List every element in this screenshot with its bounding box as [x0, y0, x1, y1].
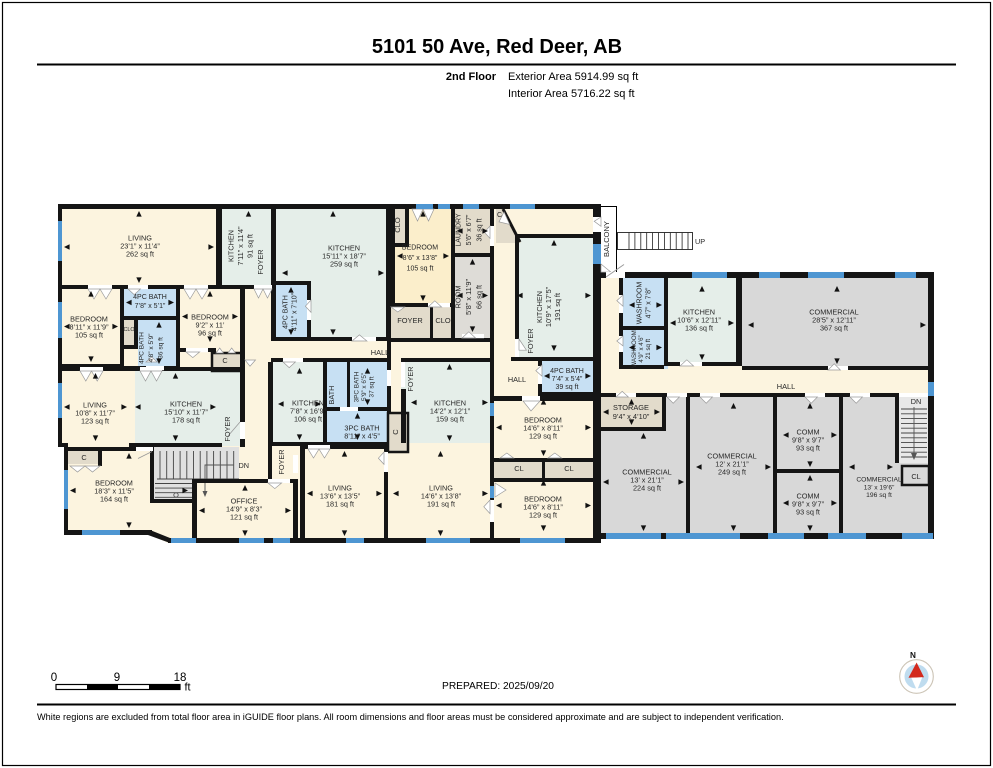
svg-text:7’8” x 5’1”: 7’8” x 5’1”	[135, 303, 166, 310]
svg-text:13’ x 19’6”: 13’ x 19’6”	[864, 484, 895, 491]
svg-text:129 sq ft: 129 sq ft	[529, 511, 557, 520]
svg-text:FOYER: FOYER	[406, 366, 415, 391]
svg-text:2nd Floor: 2nd Floor	[446, 71, 497, 83]
svg-text:CL: CL	[911, 472, 920, 481]
svg-text:37 sq ft: 37 sq ft	[368, 376, 375, 397]
svg-text:21 sq ft: 21 sq ft	[645, 339, 652, 360]
svg-text:Exterior Area 5914.99 sq ft: Exterior Area 5914.99 sq ft	[508, 71, 638, 83]
svg-text:93 sq ft: 93 sq ft	[796, 508, 820, 517]
svg-text:4’8” x 5’9”: 4’8” x 5’9”	[148, 334, 155, 363]
svg-text:129 sq ft: 129 sq ft	[529, 432, 557, 441]
svg-text:4’9” x 4’6”: 4’9” x 4’6”	[638, 335, 645, 362]
svg-text:FOYER: FOYER	[277, 449, 286, 474]
svg-text:KITCHEN: KITCHEN	[535, 291, 544, 323]
svg-text:66 sq ft: 66 sq ft	[475, 285, 484, 309]
svg-text:DN: DN	[911, 397, 922, 406]
svg-text:BEDROOM: BEDROOM	[402, 244, 438, 251]
svg-text:COMMERCIAL: COMMERCIAL	[856, 477, 902, 484]
svg-text:Interior Area 5716.22 sq ft: Interior Area 5716.22 sq ft	[508, 88, 635, 100]
svg-text:8’11” x 4’5”: 8’11” x 4’5”	[344, 432, 380, 441]
svg-text:HALL: HALL	[371, 348, 390, 357]
svg-text:5101 50 Ave, Red Deer, AB: 5101 50 Ave, Red Deer, AB	[372, 36, 622, 58]
svg-text:191 sq ft: 191 sq ft	[553, 293, 562, 321]
svg-text:93 sq ft: 93 sq ft	[796, 444, 820, 453]
svg-text:5’9” x 6’5”: 5’9” x 6’5”	[361, 373, 368, 401]
svg-text:224 sq ft: 224 sq ft	[633, 484, 661, 493]
svg-text:CL: CL	[514, 464, 523, 473]
svg-text:FOYER: FOYER	[397, 316, 422, 325]
svg-text:0: 0	[51, 672, 57, 684]
svg-text:123 sq ft: 123 sq ft	[81, 417, 109, 426]
svg-text:3PC BATH: 3PC BATH	[354, 371, 361, 402]
svg-text:BATH: BATH	[327, 386, 336, 405]
svg-text:191 sq ft: 191 sq ft	[427, 500, 455, 509]
svg-text:164 sq ft: 164 sq ft	[100, 495, 128, 504]
svg-text:367 sq ft: 367 sq ft	[820, 324, 848, 333]
svg-text:36 sq ft: 36 sq ft	[158, 337, 165, 359]
svg-text:ft: ft	[185, 682, 191, 694]
svg-text:4PC BATH: 4PC BATH	[139, 332, 146, 364]
svg-text:9: 9	[114, 672, 120, 684]
svg-text:4’11” x 7’10”: 4’11” x 7’10”	[292, 292, 299, 331]
svg-text:196 sq ft: 196 sq ft	[866, 492, 892, 499]
svg-text:C: C	[81, 453, 86, 462]
svg-text:121 sq ft: 121 sq ft	[230, 513, 258, 522]
svg-text:CLO: CLO	[123, 327, 134, 333]
svg-text:FOYER: FOYER	[526, 328, 535, 353]
svg-text:C: C	[391, 429, 400, 435]
svg-text:FOYER: FOYER	[256, 249, 265, 274]
svg-text:39 sq ft: 39 sq ft	[556, 384, 579, 391]
svg-text:CLO: CLO	[393, 217, 402, 233]
svg-text:FOYER: FOYER	[223, 416, 232, 441]
svg-text:181 sq ft: 181 sq ft	[326, 500, 354, 509]
svg-text:CLO: CLO	[435, 316, 450, 325]
svg-text:262 sq ft: 262 sq ft	[126, 250, 154, 259]
svg-text:UP: UP	[695, 237, 705, 246]
svg-text:136 sq ft: 136 sq ft	[685, 324, 713, 333]
svg-text:WASHROOM: WASHROOM	[637, 282, 644, 325]
svg-text:178 sq ft: 178 sq ft	[172, 416, 200, 425]
svg-text:PREPARED: 2025/09/20: PREPARED: 2025/09/20	[442, 681, 554, 692]
svg-text:5’6” x 6’7”: 5’6” x 6’7”	[466, 214, 473, 245]
svg-text:8’6” x 13’8”: 8’6” x 13’8”	[403, 255, 438, 262]
svg-text:105 sq ft: 105 sq ft	[75, 331, 103, 340]
svg-text:91 sq ft: 91 sq ft	[246, 234, 255, 258]
svg-text:White regions are excluded fro: White regions are excluded from total fl…	[37, 712, 784, 722]
svg-text:105 sq ft: 105 sq ft	[407, 265, 434, 272]
svg-text:BALCONY: BALCONY	[602, 221, 611, 257]
svg-text:N: N	[910, 651, 916, 660]
svg-text:10’9” x 17’5”: 10’9” x 17’5”	[544, 286, 553, 327]
svg-text:KITCHEN: KITCHEN	[227, 230, 236, 262]
svg-text:249 sq ft: 249 sq ft	[718, 468, 746, 477]
svg-text:C: C	[222, 356, 227, 365]
svg-text:7’4” x 5’4”: 7’4” x 5’4”	[552, 376, 583, 383]
svg-text:HALL: HALL	[508, 375, 526, 384]
svg-text:259 sq ft: 259 sq ft	[330, 260, 358, 269]
svg-text:7’11” x 11’4”: 7’11” x 11’4”	[236, 226, 245, 266]
svg-text:CL: CL	[564, 464, 573, 473]
svg-text:C: C	[497, 212, 502, 219]
svg-text:4PC BATH: 4PC BATH	[283, 295, 290, 329]
svg-text:159 sq ft: 159 sq ft	[436, 415, 464, 424]
svg-text:4’7” x 7’8”: 4’7” x 7’8”	[646, 287, 653, 318]
svg-text:DN: DN	[239, 461, 250, 470]
svg-text:96 sq ft: 96 sq ft	[198, 329, 222, 338]
svg-text:4PC BATH: 4PC BATH	[550, 368, 584, 375]
svg-text:HALL: HALL	[777, 382, 796, 391]
svg-text:5’8” x 11’9”: 5’8” x 11’9”	[464, 278, 473, 315]
svg-text:4PC BATH: 4PC BATH	[133, 294, 167, 301]
svg-text:106 sq ft: 106 sq ft	[294, 415, 322, 424]
